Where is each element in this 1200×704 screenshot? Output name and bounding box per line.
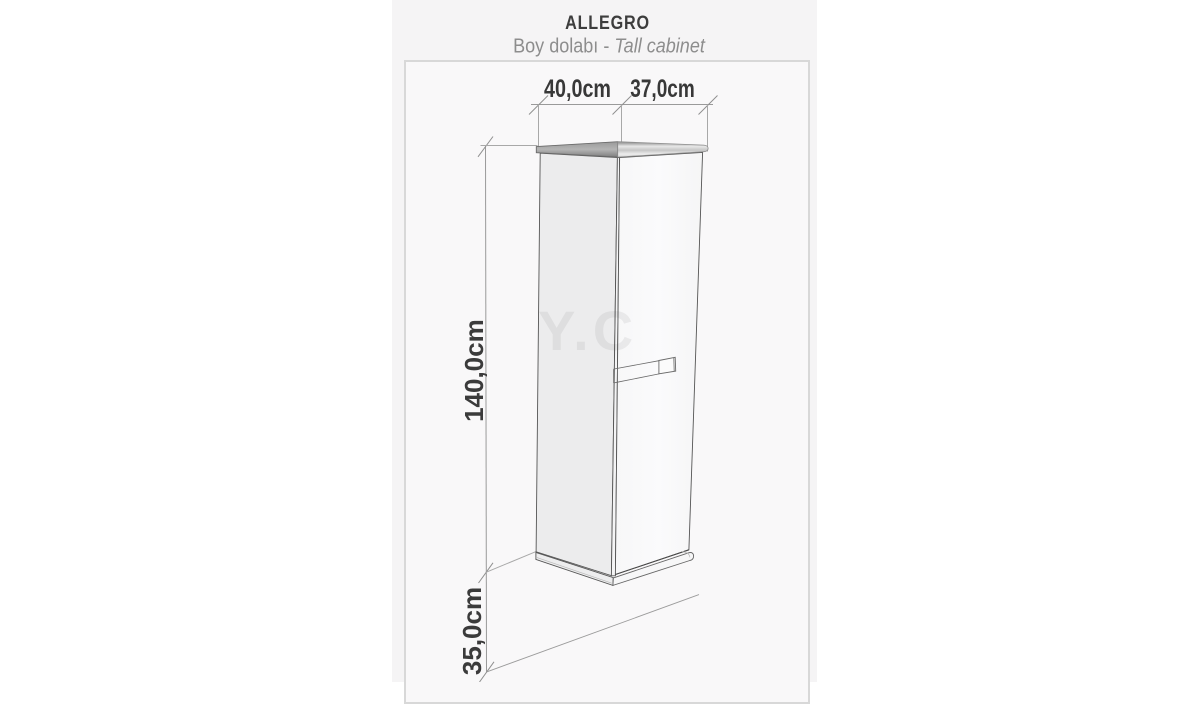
- svg-text:35,0cm: 35,0cm: [457, 587, 487, 675]
- svg-text:40,0cm: 40,0cm: [544, 75, 611, 103]
- svg-text:Y.C: Y.C: [538, 299, 637, 362]
- svg-text:37,0cm: 37,0cm: [630, 74, 694, 102]
- svg-text:Boy dolabı - Tall cabinet: Boy dolabı - Tall cabinet: [513, 36, 706, 58]
- svg-text:140,0cm: 140,0cm: [459, 319, 489, 422]
- svg-text:ALLEGRO: ALLEGRO: [565, 12, 650, 34]
